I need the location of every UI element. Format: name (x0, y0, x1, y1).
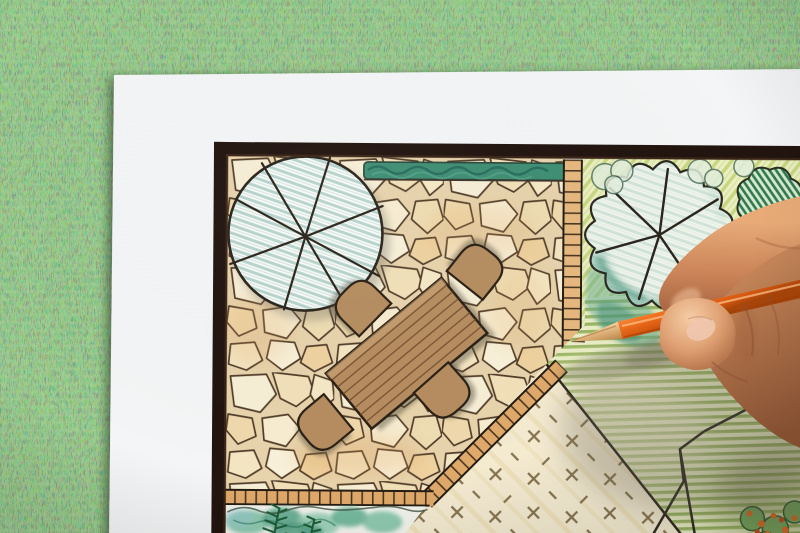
photo-scene (0, 0, 800, 533)
photo-vignette (0, 0, 800, 533)
